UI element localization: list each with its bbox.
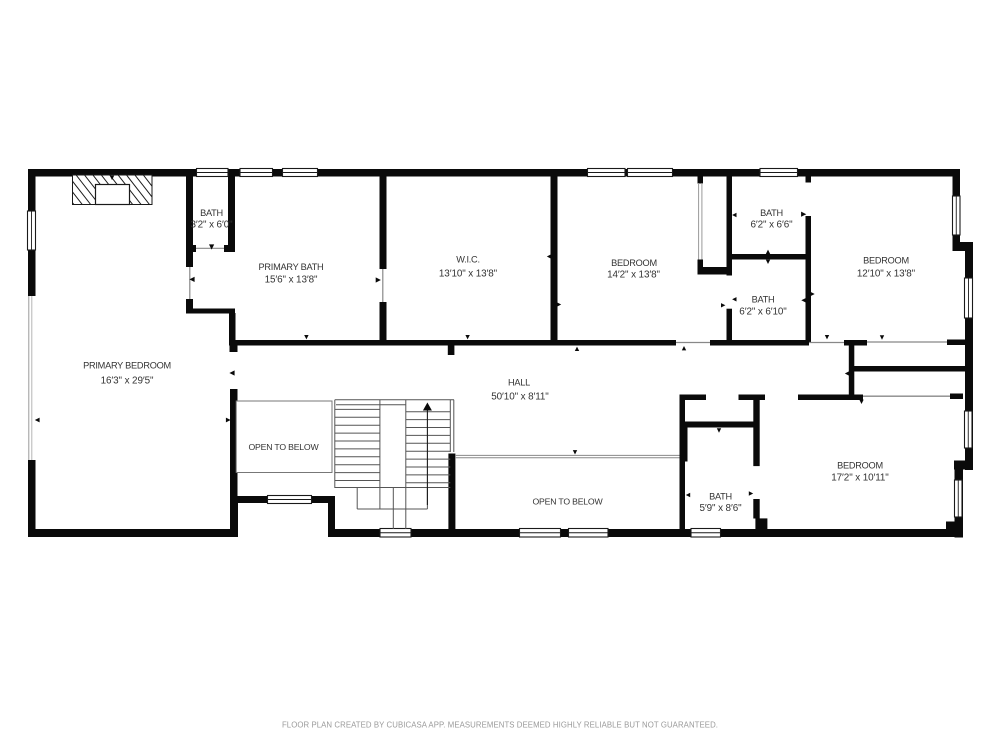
svg-text:FLOOR PLAN CREATED BY CUBICASA: FLOOR PLAN CREATED BY CUBICASA APP. MEAS… xyxy=(282,721,718,730)
svg-text:3′2" x 6′0": 3′2" x 6′0" xyxy=(190,220,233,231)
svg-text:PRIMARY BEDROOM: PRIMARY BEDROOM xyxy=(83,361,171,371)
svg-text:16′3" x 29′5": 16′3" x 29′5" xyxy=(101,376,154,387)
svg-text:BATH: BATH xyxy=(752,295,775,305)
svg-text:BEDROOM: BEDROOM xyxy=(837,461,883,471)
svg-text:6′2" x 6′10": 6′2" x 6′10" xyxy=(739,307,787,318)
svg-text:17′2" x 10′11": 17′2" x 10′11" xyxy=(831,473,889,484)
svg-text:PRIMARY BATH: PRIMARY BATH xyxy=(259,262,324,272)
svg-text:BATH: BATH xyxy=(709,491,732,501)
svg-text:OPEN TO BELOW: OPEN TO BELOW xyxy=(533,497,604,507)
svg-text:BEDROOM: BEDROOM xyxy=(863,256,909,266)
svg-text:13′10" x 13′8": 13′10" x 13′8" xyxy=(439,269,498,280)
svg-text:BEDROOM: BEDROOM xyxy=(611,258,657,268)
svg-text:W.I.C.: W.I.C. xyxy=(456,255,480,265)
svg-text:15′6" x 13′8": 15′6" x 13′8" xyxy=(265,275,318,286)
svg-text:OPEN TO BELOW: OPEN TO BELOW xyxy=(249,442,320,452)
svg-text:5′9" x 8′6": 5′9" x 8′6" xyxy=(699,503,742,514)
svg-text:14′2" x 13′8": 14′2" x 13′8" xyxy=(607,270,660,281)
svg-text:50′10" x 8′11": 50′10" x 8′11" xyxy=(491,392,549,403)
svg-text:BATH: BATH xyxy=(200,208,223,218)
svg-text:12′10" x 13′8": 12′10" x 13′8" xyxy=(857,269,916,280)
svg-text:HALL: HALL xyxy=(508,378,530,388)
svg-text:BATH: BATH xyxy=(760,208,783,218)
svg-text:6′2" x 6′6": 6′2" x 6′6" xyxy=(750,220,793,231)
